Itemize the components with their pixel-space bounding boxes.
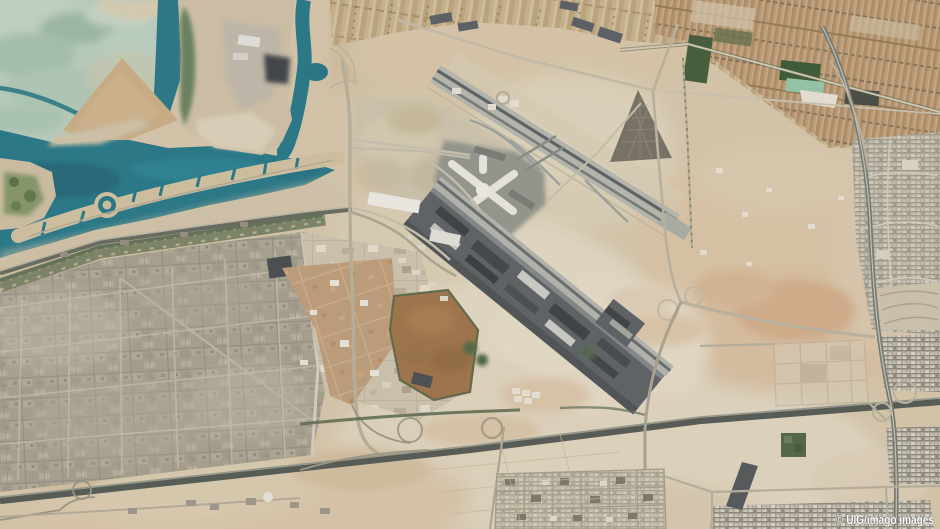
svg-text:© UIG/imago images: © UIG/imago images <box>836 512 934 527</box>
